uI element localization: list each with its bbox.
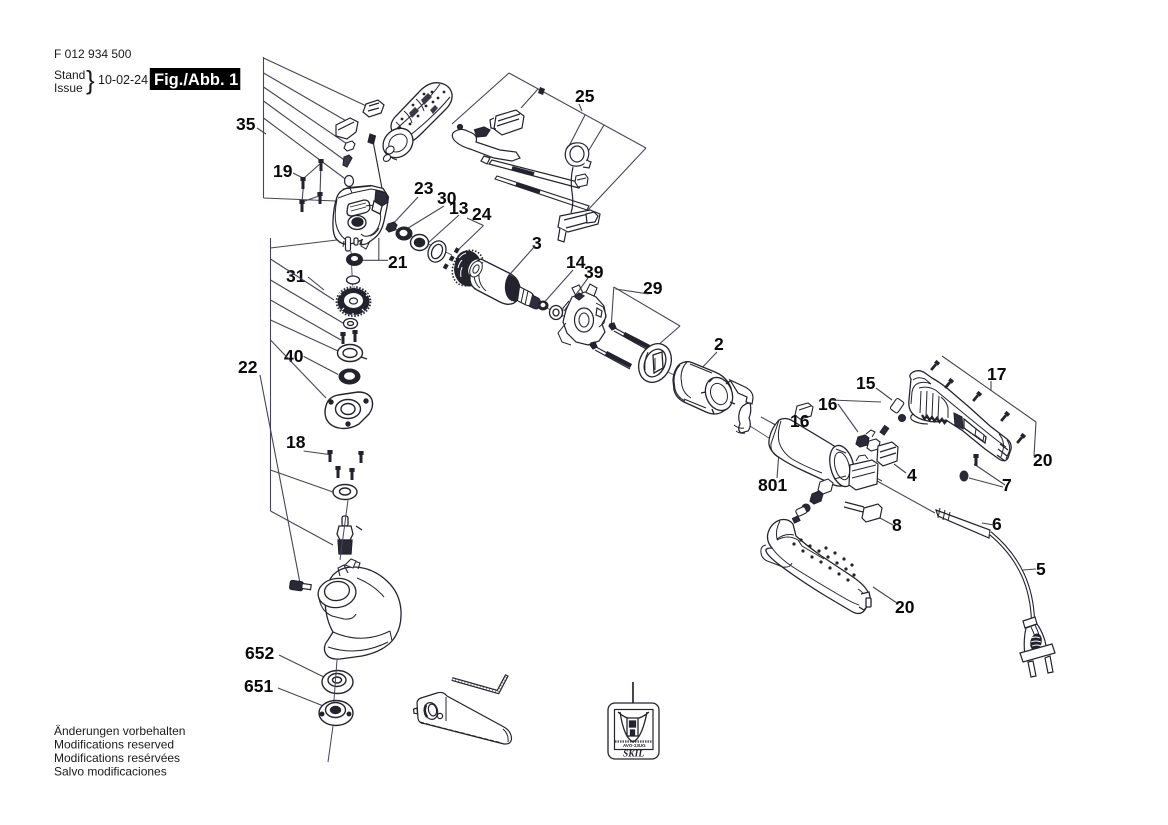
svg-text:22: 22 [238,357,258,377]
svg-text:21: 21 [388,252,408,272]
svg-text:16: 16 [818,394,838,414]
svg-text:Modifications reserved: Modifications reserved [54,738,174,752]
svg-text:19: 19 [273,161,293,181]
svg-text:}: } [86,65,95,95]
svg-text:29: 29 [643,278,663,298]
svg-text:2: 2 [714,334,724,354]
svg-text:3: 3 [532,233,542,253]
svg-text:652: 652 [245,643,274,663]
svg-text:7: 7 [1002,475,1012,495]
svg-text:Stand: Stand [54,68,85,82]
svg-text:Modifications resérvées: Modifications resérvées [54,751,180,765]
svg-text:24: 24 [472,204,492,224]
svg-text:801: 801 [758,475,787,495]
svg-text:35: 35 [236,114,256,134]
svg-text:Salvo modificaciones: Salvo modificaciones [54,765,167,779]
svg-text:6: 6 [992,514,1002,534]
svg-text:Änderungen vorbehalten: Änderungen vorbehalten [54,724,185,738]
svg-text:25: 25 [575,86,595,106]
svg-text:F 012 934 500: F 012 934 500 [54,47,132,61]
svg-text:5: 5 [1036,559,1046,579]
svg-text:40: 40 [284,346,304,366]
svg-text:20: 20 [895,597,915,617]
svg-text:10-02-24: 10-02-24 [98,73,148,87]
svg-text:20: 20 [1033,450,1053,470]
svg-text:16: 16 [790,411,810,431]
svg-text:15: 15 [856,373,876,393]
svg-text:651: 651 [244,676,273,696]
svg-text:18: 18 [286,432,306,452]
svg-text:8: 8 [892,515,902,535]
svg-text:Issue: Issue [54,81,83,95]
svg-text:4: 4 [907,465,917,485]
svg-text:17: 17 [987,364,1006,384]
svg-text:Fig./Abb. 1: Fig./Abb. 1 [154,71,238,89]
svg-text:AVO-13UG: AVO-13UG [623,743,646,748]
svg-text:SKIL: SKIL [623,750,644,760]
svg-text:14: 14 [566,252,586,272]
svg-text:23: 23 [414,178,434,198]
